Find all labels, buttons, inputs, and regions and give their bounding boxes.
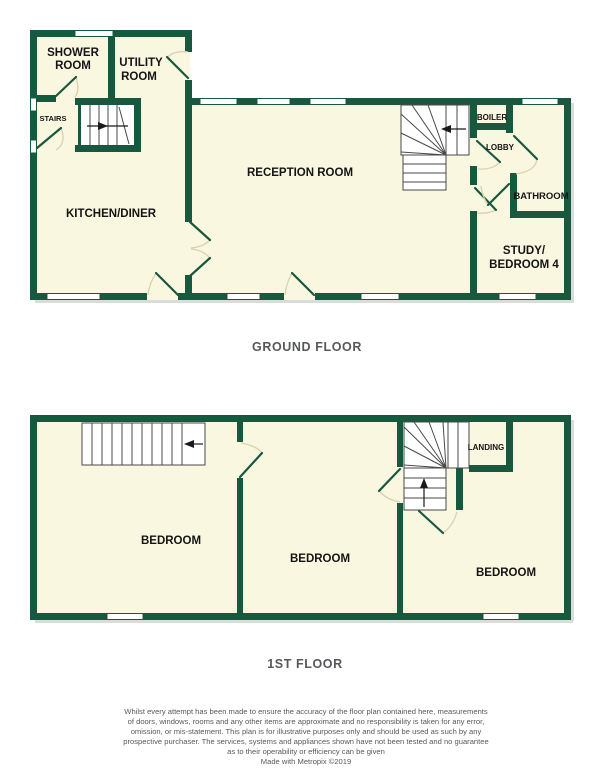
first-floor-plan: BEDROOM BEDROOM BEDROOM LANDING 1ST FLOO… [30,415,574,671]
study-bedroom4-label-line1: STUDY/ [503,245,546,257]
gf-stairs-left [81,105,134,145]
kitchen-diner-label: KITCHEN/DINER [66,208,157,220]
shower-room-label-line1: SHOWER [47,47,99,59]
first-floor-title: 1ST FLOOR [267,657,343,671]
metropix-credit: Made with Metropix ©2019 [261,757,351,766]
disclaimer-line-3: omission, or mis-statement. This plan is… [131,727,482,736]
floorplan-page: SHOWER ROOM UTILITY ROOM STAIRS KITCHEN/… [0,0,613,768]
lobby-label: LOBBY [486,143,515,152]
ground-floor-plan: SHOWER ROOM UTILITY ROOM STAIRS KITCHEN/… [30,30,574,354]
shower-room-label-line2: ROOM [55,60,91,72]
bedroom-middle-label: BEDROOM [290,553,350,565]
reception-room-label: RECEPTION ROOM [247,167,353,179]
bedroom-left-label: BEDROOM [141,535,201,547]
disclaimer-block: Whilst every attempt has been made to en… [123,707,488,766]
ground-floor-title: GROUND FLOOR [252,340,362,354]
floorplan-canvas: SHOWER ROOM UTILITY ROOM STAIRS KITCHEN/… [0,0,613,768]
disclaimer-line-1: Whilst every attempt has been made to en… [124,707,488,716]
bedroom-right-label: BEDROOM [476,567,536,579]
utility-room-label-line2: ROOM [121,71,157,83]
bathroom-label: BATHROOM [513,191,568,202]
disclaimer-line-4: prospective purchaser. The services, sys… [123,737,488,746]
ff-shadow-right [571,420,574,621]
disclaimer-line-5: as to their operability or efficiency ca… [227,747,385,756]
ff-stairs-left [82,423,205,465]
disclaimer-line-2: of doors, windows, rooms and any other i… [128,717,485,726]
study-bedroom4-label-line2: BEDROOM 4 [489,259,559,271]
utility-room-label-line1: UTILITY [119,57,163,69]
ff-shadow-bottom [35,620,573,623]
gf-shadow-right [571,103,574,303]
gf-shadow-bottom [35,300,573,303]
stairs-label: STAIRS [40,114,67,123]
landing-label: LANDING [468,443,504,452]
boiler-label: BOILER [477,113,507,122]
